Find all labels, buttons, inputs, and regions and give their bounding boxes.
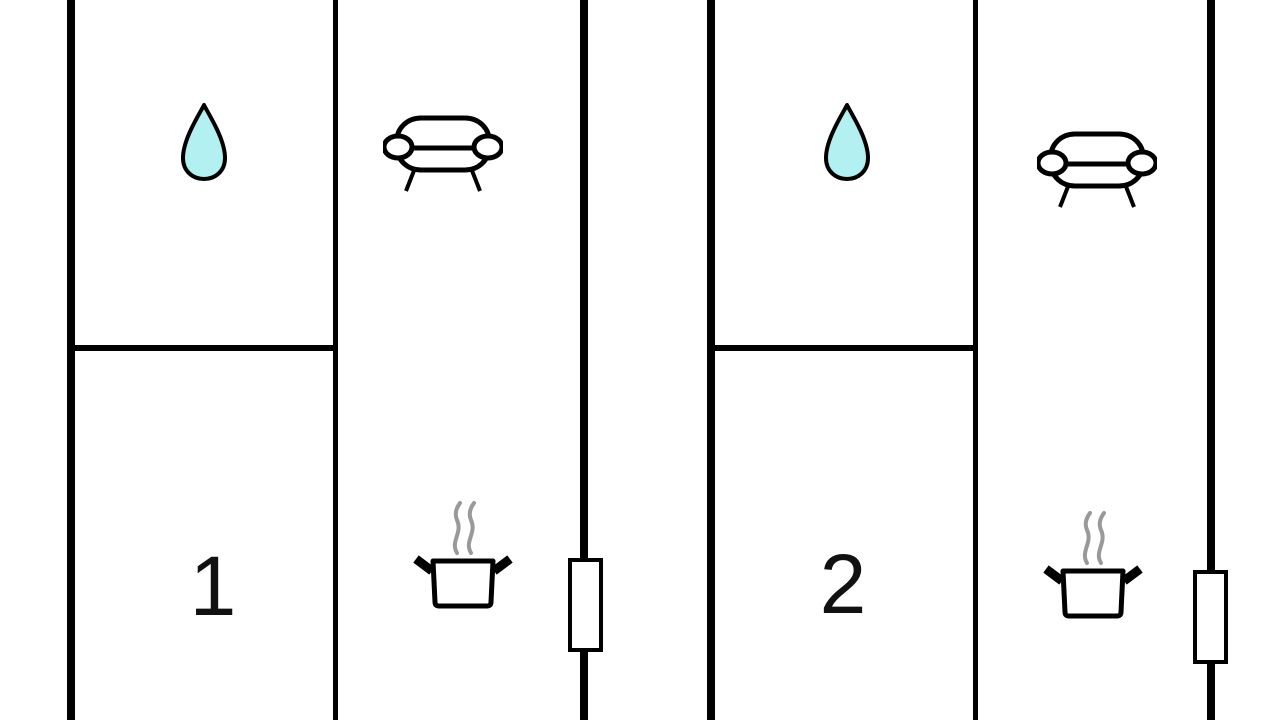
- steam-icon: [455, 503, 474, 553]
- water-drop-icon: [821, 102, 873, 182]
- sofa-icon: [383, 114, 503, 194]
- sofa-icon: [1037, 130, 1157, 210]
- cooking-pot-icon: [413, 498, 513, 613]
- water-drop-icon: [178, 102, 230, 182]
- floor-plan: 1: [0, 0, 1280, 720]
- cooking-pot-icon: [1043, 508, 1143, 623]
- unit1-room-number: 1: [190, 544, 237, 628]
- unit2-room-divider-wall: [707, 345, 978, 351]
- steam-icon: [1085, 513, 1104, 563]
- window-icon: [568, 558, 603, 652]
- window-icon: [1193, 570, 1228, 664]
- unit1-room-divider-wall: [67, 345, 338, 351]
- unit1-interior-wall: [333, 0, 338, 720]
- unit2-interior-wall: [973, 0, 978, 720]
- unit1-exterior-wall-left: [67, 0, 75, 720]
- unit2-exterior-wall-left: [707, 0, 715, 720]
- unit2-room-number: 2: [820, 542, 867, 626]
